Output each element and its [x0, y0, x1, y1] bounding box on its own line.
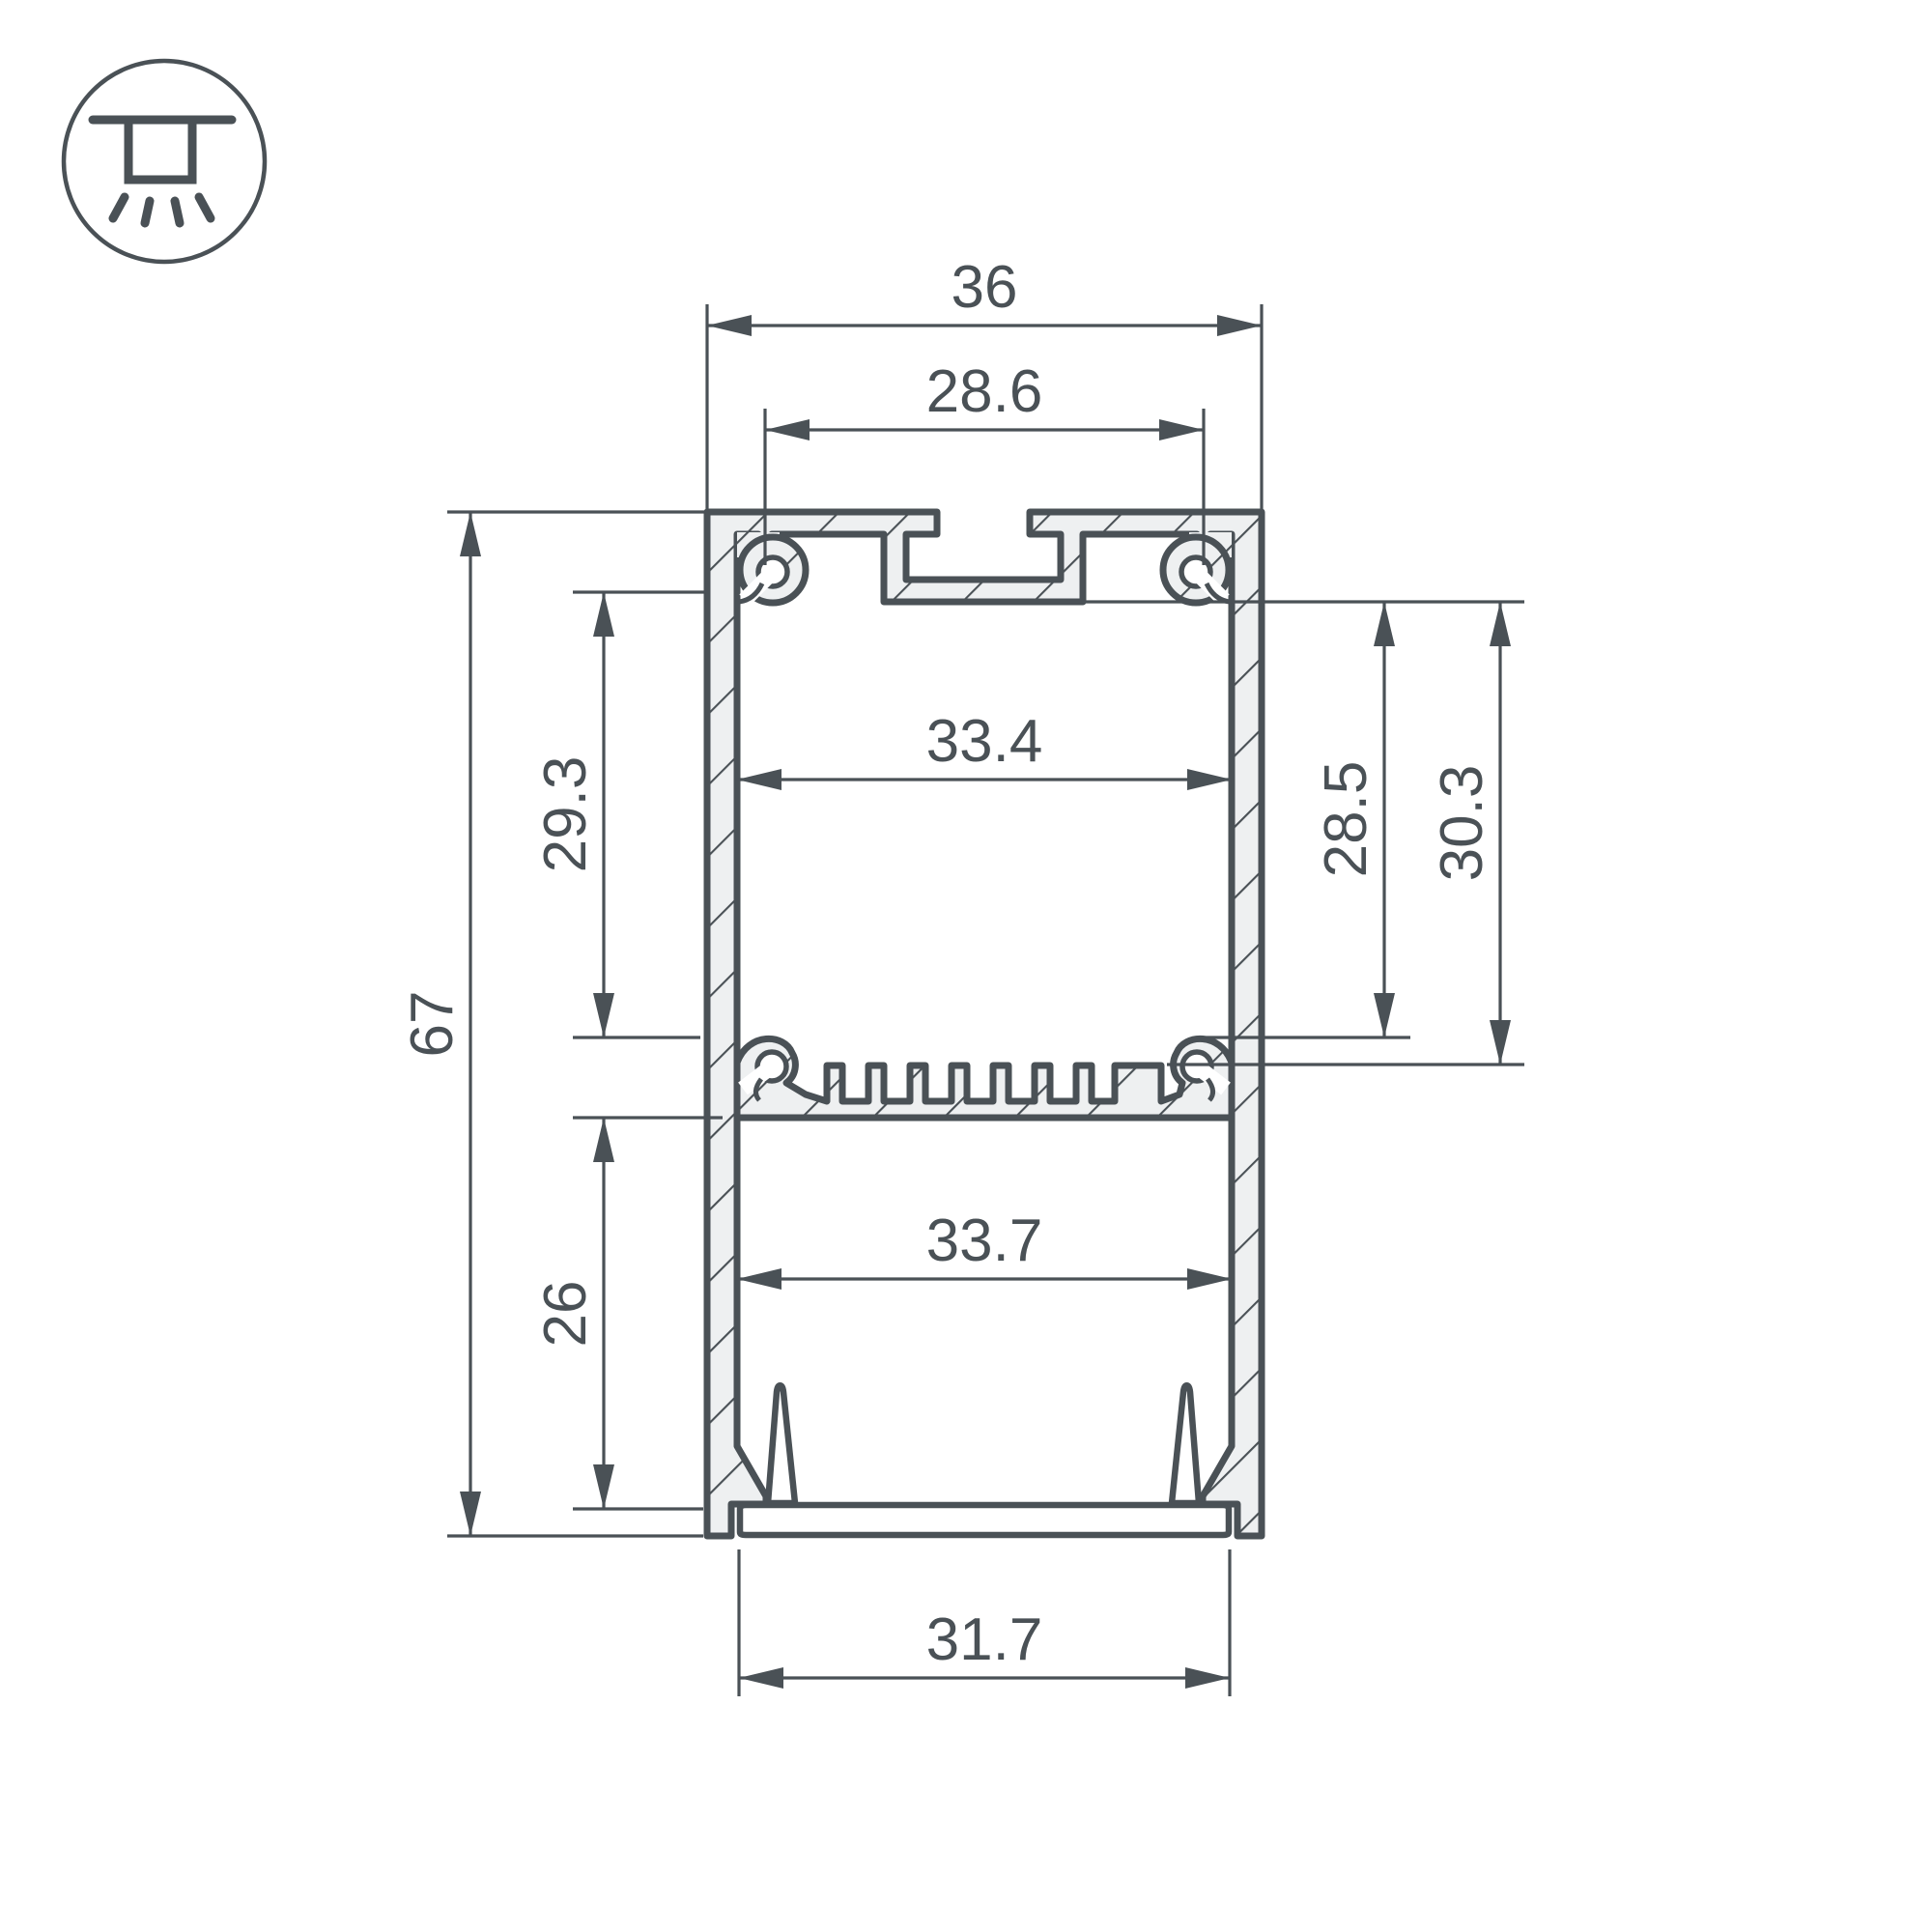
dim-lower-chamber-height: 26 [532, 1118, 723, 1509]
dim-top-slot-width-label: 28.6 [926, 358, 1043, 425]
dim-upper-chamber-height: 29.3 [532, 592, 707, 1037]
screw-holes [739, 557, 1230, 1100]
ceiling-lamp-glyph [93, 120, 232, 223]
clip-prong-left [768, 1385, 795, 1503]
dimension-annotations: 36 28.6 33.4 33.7 [399, 254, 1524, 1696]
dim-outer-width-label: 36 [952, 254, 1018, 321]
dim-lower-inner-width-label: 33.7 [926, 1207, 1043, 1274]
dim-upper-inner-width: 33.4 [737, 708, 1232, 790]
drawing-page: 36 28.6 33.4 33.7 [0, 0, 1932, 1932]
dim-right-height-to-boss-label: 28.5 [1313, 761, 1379, 878]
dim-bottom-opening-width-label: 31.7 [926, 1606, 1043, 1673]
dim-upper-inner-width-label: 33.4 [926, 708, 1043, 775]
dim-lower-inner-width: 33.7 [737, 1207, 1232, 1290]
clip-prong-right [1172, 1385, 1199, 1503]
profile-cross-section-drawing: 36 28.6 33.4 33.7 [0, 0, 1932, 1932]
diffuser-plate [740, 1505, 1229, 1535]
dim-right-height-to-fins-label: 30.3 [1429, 765, 1495, 882]
dim-lower-chamber-height-label: 26 [532, 1281, 599, 1348]
dim-overall-height: 67 [399, 512, 705, 1536]
icon-circle [64, 61, 265, 262]
aluminum-body [707, 512, 1262, 1536]
dim-upper-chamber-height-label: 29.3 [532, 756, 599, 873]
dim-overall-height-label: 67 [399, 991, 466, 1058]
diffuser-assembly [740, 1385, 1229, 1535]
dim-bottom-opening-width: 31.7 [739, 1549, 1230, 1696]
surface-mount-icon [64, 61, 265, 262]
profile-shell [707, 512, 1262, 1536]
middle-web-with-fins [737, 1038, 1232, 1118]
